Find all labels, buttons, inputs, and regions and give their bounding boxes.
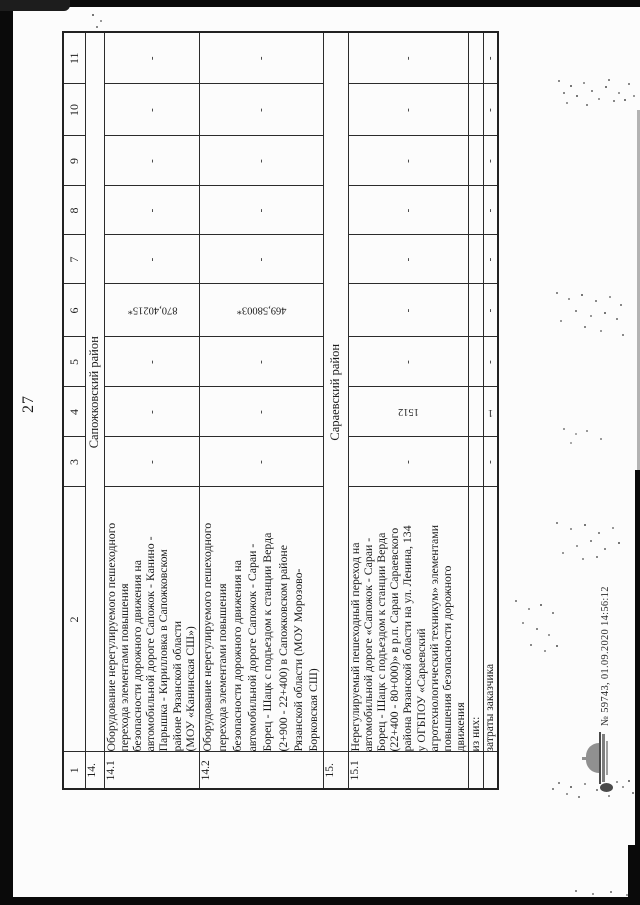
- cell-c6: -: [348, 284, 468, 337]
- scan-noise-blob: [600, 783, 613, 792]
- table-row-14-1: 14.1 Оборудование нерегулируемого пешехо…: [104, 32, 199, 789]
- rotated-table-container: 1 2 3 4 5 6 7 8 9 10 11 14. Сапожковский…: [62, 31, 499, 790]
- row-number: 15.1: [348, 752, 468, 789]
- table-header-row: 1 2 3 4 5 6 7 8 9 10 11: [63, 32, 85, 789]
- amount-value: 469,58003*: [237, 305, 287, 316]
- col-header-7: 7: [63, 235, 85, 284]
- scan-edge-left: [0, 0, 13, 905]
- signature-stamp-text: № 59743, 01.09.2020 14:56:12: [600, 586, 611, 726]
- stamp-baseline: [599, 732, 601, 784]
- cell-c8: -: [348, 186, 468, 235]
- amount-value: 1512: [398, 407, 419, 418]
- cell-c3: -: [483, 437, 498, 487]
- cell-c10: -: [348, 84, 468, 136]
- cell-c5: -: [199, 337, 323, 387]
- row-number: [468, 752, 483, 789]
- cell-c5: -: [483, 337, 498, 387]
- project-description: Нерегулируемый пешеходный переход на авт…: [348, 487, 468, 752]
- subrow-label: затраты заказчика: [483, 487, 498, 752]
- row-number: 14.2: [199, 752, 323, 789]
- cell-c3: -: [199, 437, 323, 487]
- cell-c9: -: [348, 136, 468, 186]
- table-row-14: 14. Сапожковский район: [85, 32, 104, 789]
- col-header-5: 5: [63, 337, 85, 387]
- amount-value: 1: [488, 407, 493, 418]
- cell-c3: -: [348, 437, 468, 487]
- scan-edge-corner: [628, 845, 640, 905]
- cell-c7: -: [348, 235, 468, 284]
- cell-c6: -: [483, 284, 498, 337]
- district-section-title: Сапожковский район: [85, 32, 104, 752]
- cell-c10: -: [199, 84, 323, 136]
- col-header-10: 10: [63, 84, 85, 136]
- cell-c7: -: [483, 235, 498, 284]
- cell-c5: -: [104, 337, 199, 387]
- table-row-zatraty: затраты заказчика - 1 - - - - - - -: [483, 32, 498, 789]
- cell-c5: -: [348, 337, 468, 387]
- budget-projects-table: 1 2 3 4 5 6 7 8 9 10 11 14. Сапожковский…: [62, 31, 499, 790]
- cell-c4: -: [104, 387, 199, 437]
- col-header-1: 1: [63, 752, 85, 789]
- cell-c10: -: [104, 84, 199, 136]
- scan-noise: [0, 0, 2, 2]
- cell-c6-amount: 870,40215*: [104, 284, 199, 337]
- cell-c6-amount: 469,58003*: [199, 284, 323, 337]
- scanned-document-page: 27 1 2 3 4 5 6 7 8 9 10 11 14.: [0, 0, 640, 905]
- table-row-14-2: 14.2 Оборудование нерегулируемого пешехо…: [199, 32, 323, 789]
- cell-c4-amount: 1512: [348, 387, 468, 437]
- row-number: 14.1: [104, 752, 199, 789]
- project-description: Оборудование нерегулируемого пешеходного…: [199, 487, 323, 752]
- row-number: 14.: [85, 752, 104, 789]
- signature-stamp-logo-icon: [584, 732, 610, 784]
- subrow-label: из них:: [468, 487, 483, 752]
- cell-c11: -: [348, 32, 468, 84]
- col-header-9: 9: [63, 136, 85, 186]
- cell-c9: -: [483, 136, 498, 186]
- table-row-15-1: 15.1 Нерегулируемый пешеходный переход н…: [348, 32, 468, 789]
- stamp-microtext: [606, 741, 608, 775]
- col-header-2: 2: [63, 487, 85, 752]
- scan-edge-right: [635, 470, 640, 905]
- amount-value: 870,40215*: [127, 305, 177, 316]
- cell-c7: -: [199, 235, 323, 284]
- col-header-11: 11: [63, 32, 85, 84]
- scan-edge-top-left: [0, 0, 70, 11]
- row-number: [483, 752, 498, 789]
- cell-c8: -: [104, 186, 199, 235]
- row-number: 15.: [323, 752, 348, 789]
- cell-c8: -: [483, 186, 498, 235]
- cell-c3: -: [104, 437, 199, 487]
- stamp-dome-shape: [586, 743, 599, 773]
- cell-c7: -: [104, 235, 199, 284]
- cell-c4: -: [199, 387, 323, 437]
- cell-c4-amount: 1: [483, 387, 498, 437]
- cell-c11: -: [199, 32, 323, 84]
- cell-c11: -: [104, 32, 199, 84]
- cell-c11: -: [483, 32, 498, 84]
- col-header-6: 6: [63, 284, 85, 337]
- cell-c9: -: [104, 136, 199, 186]
- page-number: 27: [20, 395, 38, 413]
- col-header-3: 3: [63, 437, 85, 487]
- scan-edge-top: [0, 0, 640, 7]
- table-row-15: 15. Сараевский район: [323, 32, 348, 789]
- table-row-iznikh: из них:: [468, 32, 483, 789]
- cell-c9: -: [199, 136, 323, 186]
- col-header-8: 8: [63, 186, 85, 235]
- scan-edge-bottom: [0, 897, 640, 905]
- col-header-4: 4: [63, 387, 85, 437]
- cell-c8: -: [199, 186, 323, 235]
- district-section-title: Сараевский район: [323, 32, 348, 752]
- cell-c10: -: [483, 84, 498, 136]
- project-description: Оборудование нерегулируемого пешеходного…: [104, 487, 199, 752]
- stamp-microtext: [602, 734, 605, 782]
